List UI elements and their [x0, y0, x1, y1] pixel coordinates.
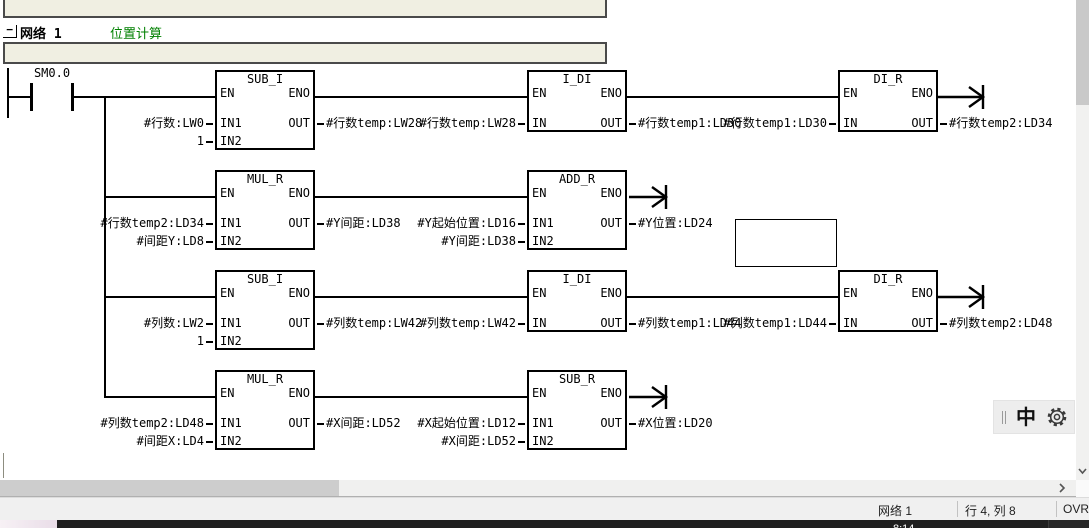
fbd-block-di-r-col[interactable]: DI_R EN ENO IN OUT: [838, 270, 938, 332]
pin-en: EN: [532, 286, 546, 300]
wire-rung3-c: [627, 296, 838, 298]
pin-in2: IN2: [220, 334, 242, 348]
ime-settings-gear-icon[interactable]: [1046, 406, 1068, 428]
fbd-block-sub-r-x[interactable]: SUB_R EN ENO IN1 IN2 OUT: [527, 370, 627, 450]
pin-in2: IN2: [532, 434, 554, 448]
pin-in1: IN1: [220, 116, 242, 130]
pin-en: EN: [220, 86, 234, 100]
vertical-scrollbar-thumb[interactable]: [1076, 0, 1089, 105]
pin-out: OUT: [600, 316, 622, 330]
taskbar-app-button[interactable]: [0, 520, 57, 528]
wire-branch-vertical: [104, 96, 106, 398]
pin-in: IN: [843, 316, 857, 330]
rung-continuation-arrow-icon[interactable]: [938, 283, 996, 311]
horizontal-scrollbar-thumb[interactable]: [0, 480, 339, 496]
ime-drag-handle-icon[interactable]: [1002, 411, 1003, 424]
pin-in2: IN2: [220, 434, 242, 448]
pin-en: EN: [220, 186, 234, 200]
operand-x-offset-in[interactable]: #X间距:LD52: [441, 434, 525, 448]
pin-en: EN: [532, 386, 546, 400]
operand-col-count[interactable]: #列数:LW2: [144, 316, 213, 330]
horizontal-scrollbar[interactable]: [0, 480, 1076, 497]
status-separator: [1056, 501, 1057, 517]
network-title[interactable]: 网络 1: [20, 23, 62, 42]
network-comment[interactable]: 位置计算: [110, 23, 162, 42]
pin-in1: IN1: [220, 416, 242, 430]
operand-y-offset-in[interactable]: #Y间距:LD38: [441, 234, 525, 248]
fbd-block-mul-r-y[interactable]: MUL_R EN ENO IN1 IN2 OUT: [215, 170, 315, 250]
status-overwrite-mode: OVR: [1063, 502, 1089, 516]
operand-x-offset-out[interactable]: #X间距:LD52: [317, 416, 401, 430]
operand-col-temp-in[interactable]: #列数temp:LW42: [420, 316, 525, 330]
power-rail: [7, 68, 9, 118]
rung-continuation-arrow-icon[interactable]: [938, 83, 996, 111]
pin-eno: ENO: [288, 386, 310, 400]
vertical-scrollbar[interactable]: [1076, 0, 1089, 480]
operand-pitch-x[interactable]: #间距X:LD4: [137, 434, 213, 448]
block-title: ADD_R: [529, 172, 625, 186]
pin-in: IN: [843, 116, 857, 130]
block-title: MUL_R: [217, 172, 313, 186]
pin-out: OUT: [600, 116, 622, 130]
block-title: MUL_R: [217, 372, 313, 386]
pin-en: EN: [220, 286, 234, 300]
block-title: SUB_R: [529, 372, 625, 386]
pin-out: OUT: [600, 216, 622, 230]
pin-in2: IN2: [532, 234, 554, 248]
pin-eno: ENO: [288, 286, 310, 300]
pin-in1: IN1: [532, 416, 554, 430]
scroll-down-arrow-icon[interactable]: [1076, 462, 1089, 480]
pin-en: EN: [532, 86, 546, 100]
fbd-block-i-di-col[interactable]: I_DI EN ENO IN OUT: [527, 270, 627, 332]
pin-eno: ENO: [288, 86, 310, 100]
pin-in2: IN2: [220, 134, 242, 148]
fbd-block-mul-r-x[interactable]: MUL_R EN ENO IN1 IN2 OUT: [215, 370, 315, 450]
pin-eno: ENO: [911, 286, 933, 300]
comment-box-network[interactable]: [3, 42, 607, 64]
ime-toolbar[interactable]: 中: [993, 400, 1075, 434]
block-title: SUB_I: [217, 272, 313, 286]
pin-out: OUT: [911, 316, 933, 330]
pin-in2: IN2: [220, 234, 242, 248]
pin-eno: ENO: [911, 86, 933, 100]
pin-out: OUT: [288, 216, 310, 230]
operand-row-temp2-in[interactable]: #行数temp2:LD34: [101, 216, 213, 230]
operand-const-1[interactable]: 1: [197, 334, 213, 348]
status-bar: 网络 1 行 4, 列 8 OVR: [0, 497, 1089, 521]
status-network: 网络 1: [878, 502, 912, 519]
operand-row-temp-in[interactable]: #行数temp:LW28: [420, 116, 525, 130]
taskbar-clock[interactable]: 8:14: [893, 523, 914, 528]
wire-rung1-c: [315, 96, 527, 98]
pin-out: OUT: [288, 116, 310, 130]
wire-rung4-a: [104, 396, 217, 398]
operand-y-position-out[interactable]: #Y位置:LD24: [629, 216, 713, 230]
pin-out: OUT: [288, 316, 310, 330]
wire-rung4-b: [315, 396, 527, 398]
empty-box[interactable]: [735, 219, 837, 267]
operand-col-temp1-in[interactable]: #列数temp1:LD44: [724, 316, 836, 330]
operand-y-start-pos[interactable]: #Y起始位置:LD16: [417, 216, 525, 230]
comment-box-top[interactable]: [3, 0, 607, 18]
contact-operand[interactable]: SM0.0: [27, 66, 77, 80]
pin-en: EN: [843, 286, 857, 300]
pin-in1: IN1: [532, 216, 554, 230]
fbd-block-sub-i-row[interactable]: SUB_I EN ENO IN1 IN2 OUT: [215, 70, 315, 150]
pin-en: EN: [843, 86, 857, 100]
operand-y-offset-out[interactable]: #Y间距:LD38: [317, 216, 401, 230]
fbd-block-di-r-row[interactable]: DI_R EN ENO IN OUT: [838, 70, 938, 132]
pin-en: EN: [220, 386, 234, 400]
status-separator: [957, 501, 958, 517]
fbd-block-sub-i-col[interactable]: SUB_I EN ENO IN1 IN2 OUT: [215, 270, 315, 350]
wire-rung3-b: [315, 296, 527, 298]
pin-out: OUT: [600, 416, 622, 430]
fbd-block-i-di-row[interactable]: I_DI EN ENO IN OUT: [527, 70, 627, 132]
fbd-block-add-r-y[interactable]: ADD_R EN ENO IN1 IN2 OUT: [527, 170, 627, 250]
rung-continuation-arrow-icon[interactable]: [629, 383, 679, 411]
wire-rung1-d: [627, 96, 838, 98]
pin-eno: ENO: [600, 386, 622, 400]
wire-rung2-b: [315, 196, 527, 198]
ime-language-toggle[interactable]: 中: [1016, 406, 1036, 428]
block-title: I_DI: [529, 272, 625, 286]
scroll-right-arrow-icon[interactable]: [1054, 481, 1072, 495]
pin-eno: ENO: [288, 186, 310, 200]
operand-row-temp1-in[interactable]: #行数temp1:LD30: [724, 116, 836, 130]
collapse-network-button[interactable]: −: [3, 25, 17, 38]
operand-pitch-y[interactable]: #间距Y:LD8: [137, 234, 213, 248]
next-network-box-edge: [3, 453, 4, 478]
operand-col-temp-out[interactable]: #列数temp:LW42: [317, 316, 422, 330]
operand-x-start-pos[interactable]: #X起始位置:LD12: [417, 416, 525, 430]
pin-in1: IN1: [220, 216, 242, 230]
scrollbar-corner: [1076, 480, 1089, 497]
wire-rung2-a: [104, 196, 217, 198]
plc-ladder-editor: − 网络 1 位置计算 SM0.0 SUB_I EN ENO IN1 IN2 O…: [0, 0, 1089, 528]
operand-x-position-out[interactable]: #X位置:LD20: [629, 416, 713, 430]
status-cursor-position: 行 4, 列 8: [965, 502, 1016, 519]
pin-out: OUT: [288, 416, 310, 430]
block-title: I_DI: [529, 72, 625, 86]
pin-in: IN: [532, 116, 546, 130]
pin-en: EN: [532, 186, 546, 200]
operand-const-1[interactable]: 1: [197, 134, 213, 148]
operand-row-temp2-out[interactable]: #行数temp2:LD34: [940, 116, 1052, 130]
operand-row-count[interactable]: #行数:LW0: [144, 116, 213, 130]
pin-eno: ENO: [600, 86, 622, 100]
pin-eno: ENO: [600, 186, 622, 200]
taskbar-tray-area[interactable]: [1048, 520, 1089, 528]
operand-col-temp2-out[interactable]: #列数temp2:LD48: [940, 316, 1052, 330]
contact-bar-left: [30, 83, 33, 111]
pin-in: IN: [532, 316, 546, 330]
block-title: SUB_I: [217, 72, 313, 86]
rung-continuation-arrow-icon[interactable]: [629, 183, 679, 211]
pin-eno: ENO: [600, 286, 622, 300]
taskbar[interactable]: 8:14: [0, 520, 1089, 528]
block-title: DI_R: [840, 72, 936, 86]
wire-rung1-b: [74, 96, 217, 98]
wire-rung3-a: [104, 296, 217, 298]
pin-in1: IN1: [220, 316, 242, 330]
wire-rung1-a: [8, 96, 31, 98]
operand-row-temp-out[interactable]: #行数temp:LW28: [317, 116, 422, 130]
pin-out: OUT: [911, 116, 933, 130]
block-title: DI_R: [840, 272, 936, 286]
operand-col-temp2-in[interactable]: #列数temp2:LD48: [101, 416, 213, 430]
ime-drag-handle-icon[interactable]: [1005, 411, 1006, 424]
